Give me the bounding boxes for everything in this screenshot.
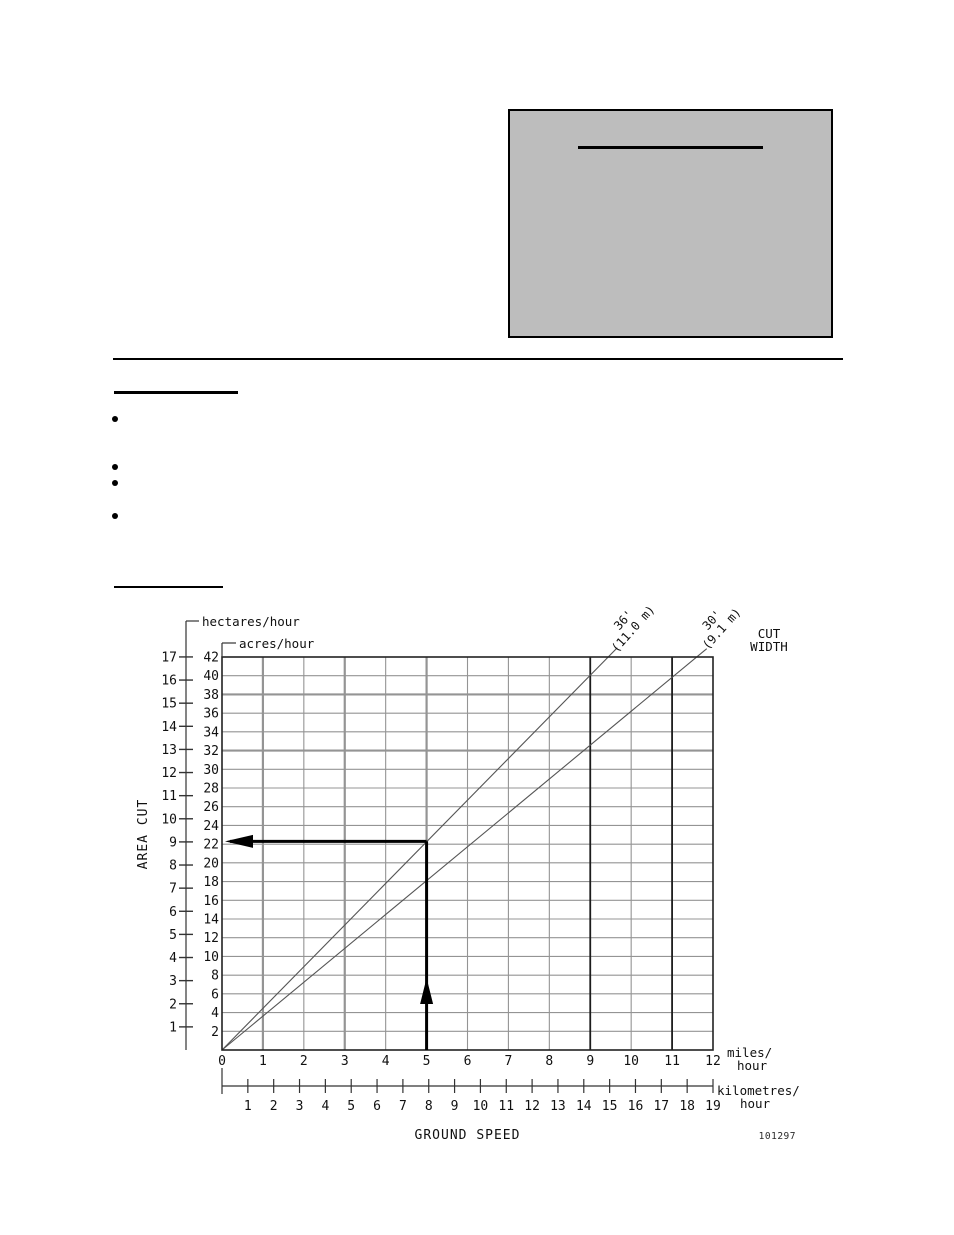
acres-axis-title: acres/hour (239, 636, 315, 651)
hectares-tick-label: 7 (169, 882, 177, 897)
miles-tick-label: 12 (705, 1054, 721, 1069)
acres-tick-label: 34 (203, 725, 219, 740)
km-tick-label: 17 (653, 1099, 669, 1114)
hectares-tick-label: 16 (161, 674, 177, 689)
cut-width-line-label-2: 30'(9.1 m) (690, 597, 744, 653)
cut-width-line-2 (222, 649, 707, 1050)
km-tick-label: 5 (347, 1099, 355, 1114)
acres-tick-label: 14 (203, 913, 219, 928)
acres-tick-label: 12 (203, 931, 219, 946)
acres-tick-label: 10 (203, 950, 219, 965)
cut-width-heading: WIDTH (750, 639, 788, 654)
acres-tick-label: 6 (211, 987, 219, 1002)
miles-axis-title: hour (737, 1058, 768, 1073)
hectares-tick-label: 14 (161, 720, 177, 735)
miles-tick-label: 2 (300, 1054, 308, 1069)
km-tick-label: 11 (498, 1099, 514, 1114)
acres-tick-label: 2 (211, 1025, 219, 1040)
miles-tick-label: 11 (664, 1054, 680, 1069)
miles-tick-label: 5 (423, 1054, 431, 1069)
hectares-tick-label: 17 (161, 650, 177, 665)
area-cut-vs-ground-speed-chart: 36'(11.0 m)30'(9.1 m)2468101214161820222… (0, 0, 954, 1235)
miles-tick-label: 3 (341, 1054, 349, 1069)
km-tick-label: 18 (679, 1099, 695, 1114)
acres-tick-label: 28 (203, 782, 219, 797)
hectares-tick-label: 15 (161, 697, 177, 712)
acres-tick-label: 16 (203, 894, 219, 909)
acres-tick-label: 4 (211, 1006, 219, 1021)
km-tick-label: 15 (602, 1099, 618, 1114)
hectares-tick-label: 13 (161, 743, 177, 758)
km-tick-label: 7 (399, 1099, 407, 1114)
miles-tick-label: 9 (586, 1054, 594, 1069)
km-tick-label: 16 (628, 1099, 644, 1114)
example-arrowhead-left (225, 835, 253, 848)
cut-width-line-label-1: 36'(11.0 m) (599, 594, 658, 655)
acres-tick-label: 22 (203, 838, 219, 853)
hectares-tick-label: 8 (169, 859, 177, 874)
km-tick-label: 10 (473, 1099, 489, 1114)
km-tick-label: 12 (524, 1099, 540, 1114)
hectares-tick-label: 11 (161, 789, 177, 804)
acres-tick-label: 42 (203, 651, 219, 666)
hectares-tick-label: 3 (169, 974, 177, 989)
hectares-tick-label: 2 (169, 997, 177, 1012)
acres-tick-label: 36 (203, 707, 219, 722)
miles-tick-label: 1 (259, 1054, 267, 1069)
km-tick-label: 6 (373, 1099, 381, 1114)
acres-tick-label: 32 (203, 744, 219, 759)
acres-tick-label: 18 (203, 875, 219, 890)
km-tick-label: 8 (425, 1099, 433, 1114)
example-arrowhead-up (420, 978, 433, 1004)
miles-tick-label: 6 (464, 1054, 472, 1069)
hectares-tick-label: 4 (169, 951, 177, 966)
km-tick-label: 9 (451, 1099, 459, 1114)
km-axis-title: hour (740, 1096, 771, 1111)
km-tick-label: 14 (576, 1099, 592, 1114)
km-tick-label: 3 (296, 1099, 304, 1114)
miles-tick-label: 8 (545, 1054, 553, 1069)
km-tick-label: 2 (270, 1099, 278, 1114)
acres-tick-label: 8 (211, 969, 219, 984)
km-tick-label: 13 (550, 1099, 566, 1114)
hectares-tick-label: 10 (161, 812, 177, 827)
miles-tick-label: 7 (505, 1054, 513, 1069)
hectares-tick-label: 9 (169, 835, 177, 850)
miles-tick-label: 4 (382, 1054, 390, 1069)
acres-tick-label: 40 (203, 669, 219, 684)
y-axis-title: AREA CUT (136, 799, 151, 870)
document-number: 101297 (738, 1131, 796, 1142)
y-axis-title-text: AREA CUT (136, 799, 151, 870)
x-axis-title: GROUND SPEED (415, 1128, 521, 1143)
acres-tick-label: 26 (203, 800, 219, 815)
miles-tick-label: 0 (218, 1054, 226, 1069)
miles-tick-label: 10 (623, 1054, 639, 1069)
hectares-axis-title: hectares/hour (202, 614, 300, 629)
acres-tick-label: 30 (203, 763, 219, 778)
km-tick-label: 19 (705, 1099, 721, 1114)
acres-tick-label: 38 (203, 688, 219, 703)
acres-tick-label: 20 (203, 856, 219, 871)
km-tick-label: 4 (321, 1099, 329, 1114)
hectares-tick-label: 5 (169, 928, 177, 943)
hectares-tick-label: 6 (169, 905, 177, 920)
km-tick-label: 1 (244, 1099, 252, 1114)
hectares-tick-label: 1 (169, 1020, 177, 1035)
cut-width-line-1 (222, 648, 617, 1050)
acres-tick-label: 24 (203, 819, 219, 834)
manual-page: 36'(11.0 m)30'(9.1 m)2468101214161820222… (0, 0, 954, 1235)
hectares-tick-label: 12 (161, 766, 177, 781)
